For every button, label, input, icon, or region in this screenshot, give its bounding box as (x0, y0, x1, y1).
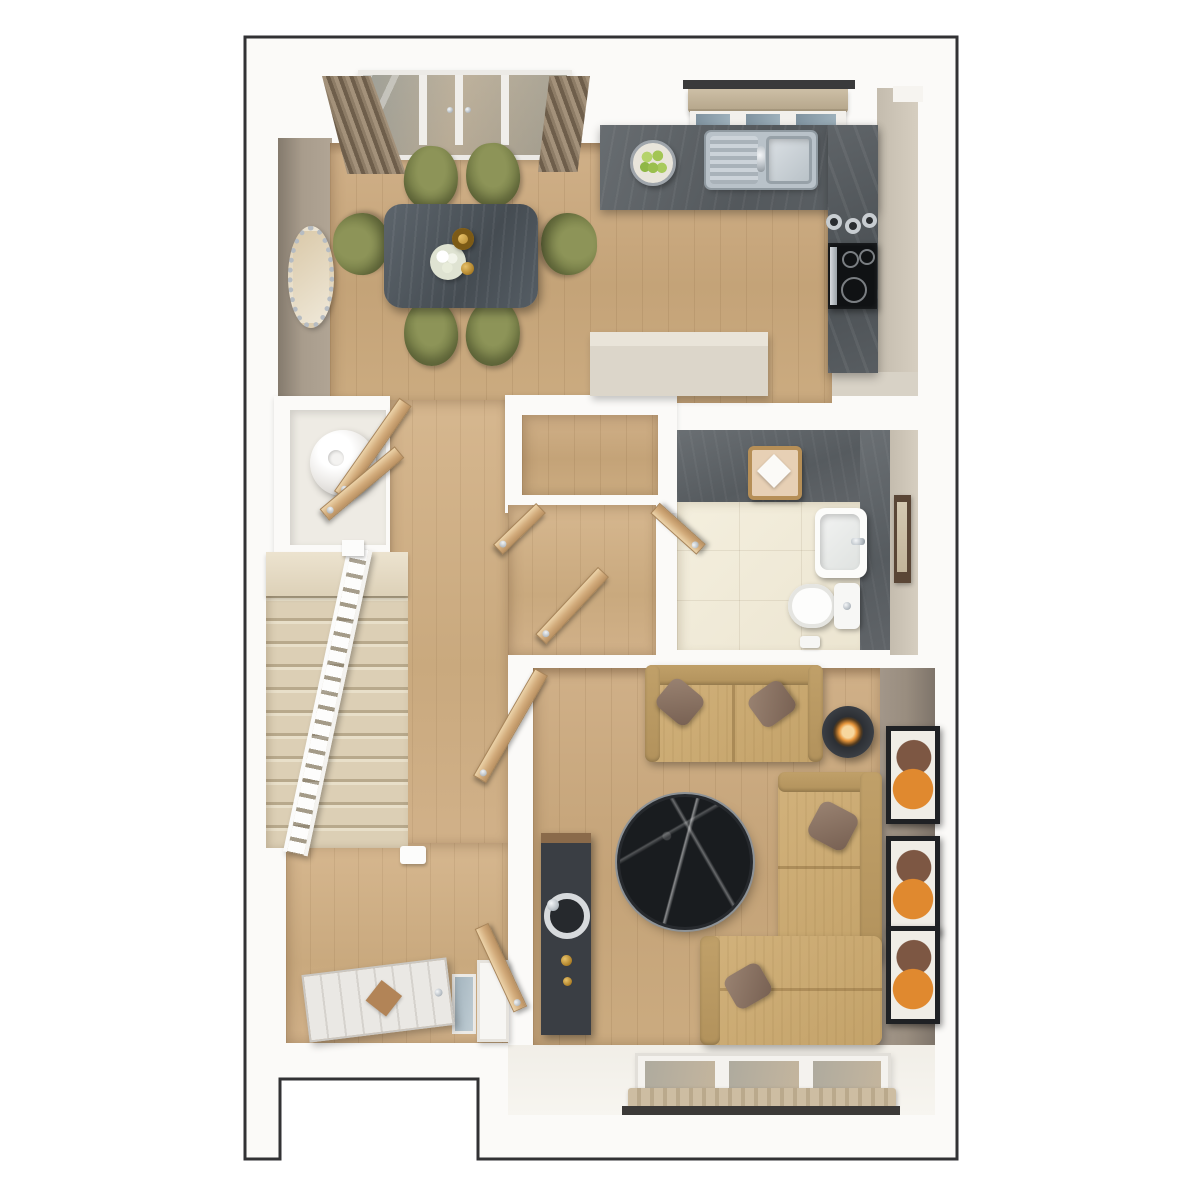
burner (841, 277, 867, 303)
kitchen-wall-step (893, 86, 923, 102)
sofa-arm-left (700, 936, 720, 1045)
burner (859, 249, 875, 265)
newel-post-bottom (400, 846, 426, 864)
wall-mirror (288, 226, 334, 328)
window-pane (696, 114, 730, 125)
sink-drainer (710, 136, 758, 184)
fruit-bowl (630, 140, 676, 186)
storage-basket (748, 446, 802, 500)
window-pane (746, 114, 780, 125)
oven-front (830, 247, 837, 305)
bathroom-basin (815, 508, 867, 578)
towel-rail (894, 495, 911, 583)
media-knob (561, 955, 572, 966)
wall-art-frame (886, 926, 940, 1024)
door-mullion (455, 75, 463, 145)
sidelight-glass (452, 974, 476, 1034)
coffee-table (620, 797, 750, 927)
stair-landing (266, 552, 408, 596)
kitchen-peninsula (590, 332, 768, 396)
door-knob (512, 998, 521, 1007)
door-knob (541, 629, 551, 639)
window-pelmet-tan (628, 1088, 896, 1108)
canister (826, 214, 842, 230)
doormat-diamond (366, 980, 402, 1016)
cylinder-cap (328, 450, 344, 466)
sink-bowl (766, 136, 812, 184)
door-knob (325, 505, 335, 515)
window-rail-dark (622, 1106, 900, 1115)
sofa-arm-right (808, 665, 823, 762)
sofa-seam (778, 866, 860, 869)
speaker-knob (547, 899, 559, 911)
toilet-roll (800, 636, 820, 648)
gold-vase (452, 228, 474, 250)
door-mullion (501, 75, 509, 145)
gold-candle (461, 262, 474, 275)
candle-side-table (822, 706, 874, 758)
cupboard-floor (522, 415, 658, 495)
newel-post-top (342, 540, 364, 556)
kitchen-right-wall (877, 88, 918, 375)
sofa-seam (732, 685, 735, 762)
media-unit (541, 833, 591, 1035)
wall-art-frame (886, 836, 940, 934)
door-knob (690, 540, 700, 550)
kitchen-window-blind (688, 89, 848, 113)
media-knob (563, 977, 572, 986)
kitchen-sink (706, 132, 816, 188)
hanging-towel (897, 502, 907, 572)
toilet-bowl (788, 584, 836, 628)
basin-tap (851, 538, 865, 545)
door-handle (447, 107, 453, 113)
burner (842, 251, 859, 268)
kitchen-rear-ledge (832, 372, 918, 396)
sofa-arm-left (645, 665, 660, 762)
door-handle (434, 988, 443, 997)
canister (845, 218, 861, 234)
wall-art-frame (886, 726, 940, 824)
toilet-cistern (834, 583, 860, 629)
door-handle (465, 107, 471, 113)
hob (828, 243, 877, 309)
folded-towel (757, 454, 791, 488)
sink-faucet (757, 146, 765, 172)
window-pane (796, 114, 836, 125)
kitchen-window-pelmet (683, 80, 855, 89)
door-knob (478, 768, 488, 778)
door-mullion (419, 75, 427, 145)
flush-button (843, 602, 851, 610)
canister (862, 213, 877, 228)
door-knob (498, 539, 508, 549)
floorplan-canvas (0, 0, 1200, 1200)
